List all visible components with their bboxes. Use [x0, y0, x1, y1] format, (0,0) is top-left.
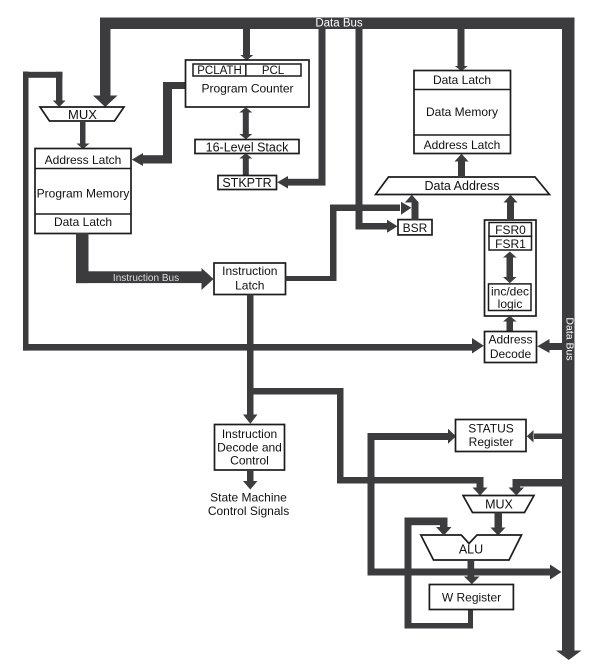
svg-text:Program Memory: Program Memory [37, 187, 130, 201]
svg-text:Data Latch: Data Latch [54, 215, 112, 229]
svg-text:ALU: ALU [459, 543, 483, 557]
svg-text:PCL: PCL [262, 65, 285, 77]
svg-text:MUX: MUX [68, 107, 97, 122]
svg-text:State Machine: State Machine [210, 491, 287, 505]
svg-text:Decode and: Decode and [217, 441, 282, 455]
svg-text:Register: Register [469, 435, 514, 449]
svg-text:PCLATH: PCLATH [197, 65, 242, 77]
svg-text:Address Latch: Address Latch [424, 138, 501, 152]
svg-text:Program Counter: Program Counter [201, 82, 293, 96]
svg-text:STATUS: STATUS [468, 422, 514, 436]
svg-text:Data Address: Data Address [424, 179, 499, 193]
svg-text:Decode: Decode [490, 347, 532, 361]
svg-text:BSR: BSR [403, 221, 428, 235]
svg-text:Data Memory: Data Memory [426, 105, 498, 119]
svg-text:STKPTR: STKPTR [222, 176, 271, 190]
svg-text:Address Latch: Address Latch [45, 153, 122, 167]
svg-text:Address: Address [488, 333, 532, 347]
svg-text:W Register: W Register [442, 590, 501, 604]
svg-text:Control: Control [230, 454, 269, 468]
svg-text:Data Bus: Data Bus [315, 18, 363, 30]
svg-text:16-Level Stack: 16-Level Stack [206, 140, 289, 154]
svg-text:logic: logic [498, 297, 523, 311]
svg-text:Instruction: Instruction [222, 264, 277, 278]
svg-text:Data Latch: Data Latch [433, 73, 491, 87]
svg-text:FSR1: FSR1 [495, 237, 526, 251]
svg-text:Latch: Latch [235, 279, 264, 293]
svg-text:MUX: MUX [485, 498, 513, 512]
svg-text:Instruction Bus: Instruction Bus [113, 273, 179, 284]
svg-text:Control Signals: Control Signals [208, 504, 289, 518]
svg-text:Instruction: Instruction [222, 427, 277, 441]
svg-text:Data Bus: Data Bus [564, 317, 576, 360]
svg-text:FSR0: FSR0 [495, 223, 526, 237]
